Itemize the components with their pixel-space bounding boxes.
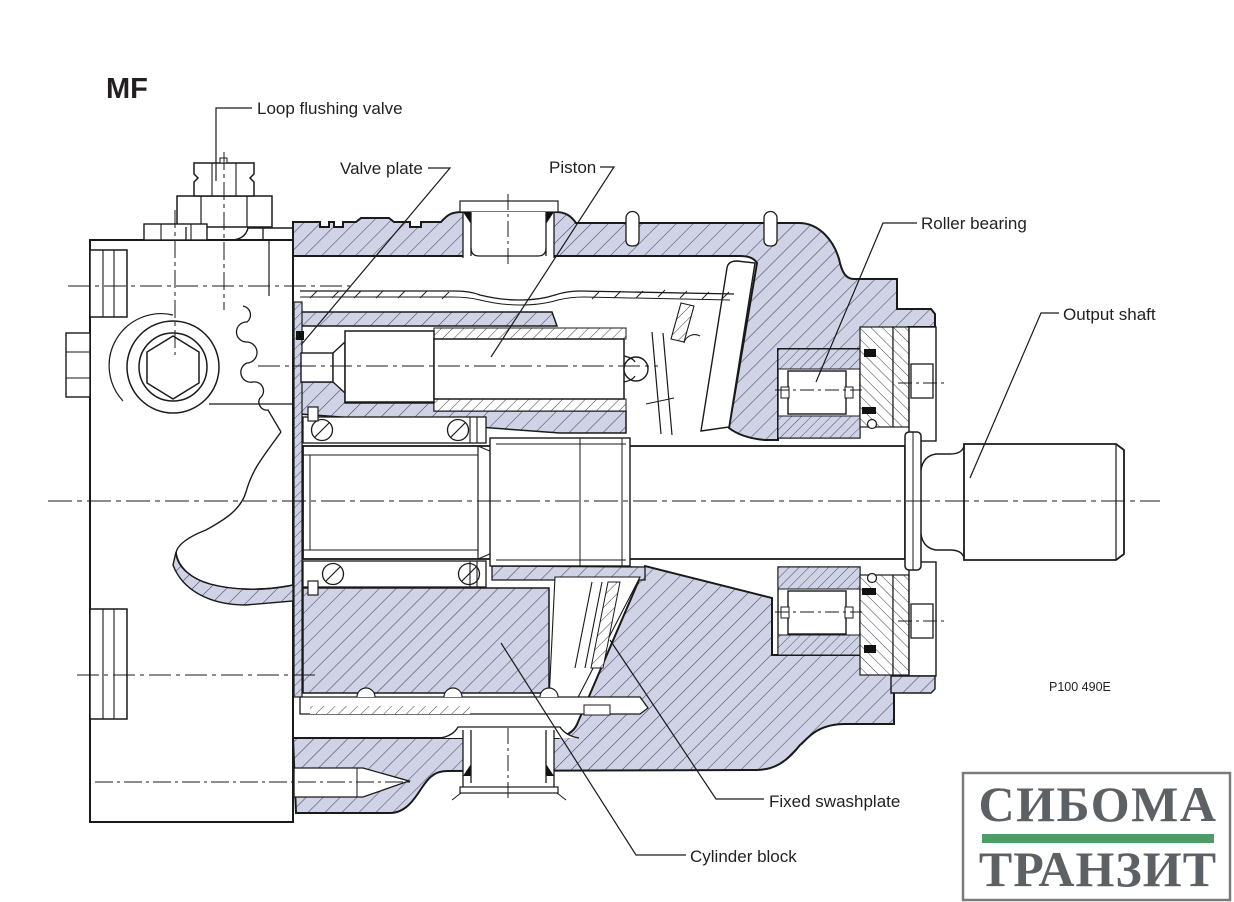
svg-text:Cylinder block: Cylinder block: [690, 847, 797, 866]
svg-text:Roller bearing: Roller bearing: [921, 214, 1027, 233]
svg-text:Piston: Piston: [549, 158, 596, 177]
svg-text:Fixed swashplate: Fixed swashplate: [769, 792, 900, 811]
svg-text:ТРАНЗИТ: ТРАНЗИТ: [979, 841, 1217, 897]
svg-text:СИБОМА: СИБОМА: [979, 776, 1218, 832]
svg-text:Valve plate: Valve plate: [340, 159, 423, 178]
svg-text:MF: MF: [106, 73, 148, 105]
svg-text:Output shaft: Output shaft: [1063, 305, 1156, 324]
svg-text:P100 490E: P100 490E: [1049, 680, 1111, 694]
svg-text:Loop flushing valve: Loop flushing valve: [257, 99, 403, 118]
